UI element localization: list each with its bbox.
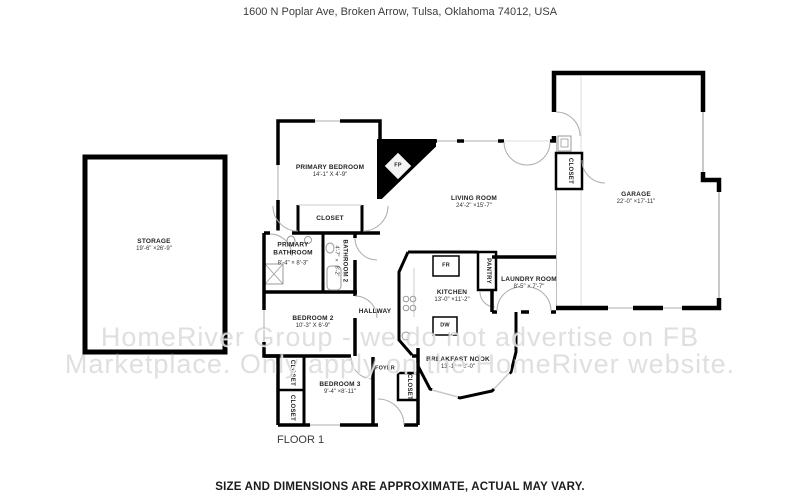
room-label-hallway: HALLWAY xyxy=(359,308,392,316)
room-label-kitchen: KITCHEN 13'-0" ×11'-2" xyxy=(434,289,469,305)
room-label-pantry: PANTRY xyxy=(483,258,491,284)
room-label-storage: STORAGE 19'-6" ×26'-9" xyxy=(136,238,172,254)
room-label-primary-closet: CLOSET xyxy=(316,215,344,223)
room-label-living-room: LIVING ROOM 24'-2" ×15'-7" xyxy=(451,195,497,211)
fridge-label: FR xyxy=(442,263,450,270)
room-label-garage-closet: CLOSET xyxy=(565,158,573,184)
room-label-primary-bathroom: PRIMARY BATHROOM 8'-4" × 8'-3" xyxy=(270,240,316,268)
room-label-laundry: LAUNDRY ROOM 8'-5" × 7'-7" xyxy=(501,276,557,292)
fireplace-label: FP xyxy=(394,163,401,170)
room-label-primary-bedroom: PRIMARY BEDROOM 14'-1" X 4'-9" xyxy=(296,164,364,180)
floor-plan-drawing xyxy=(0,0,800,499)
room-label-bedroom3: BEDROOM 3 9'-4" ×8'-11" xyxy=(319,381,360,397)
disclaimer-text: SIZE AND DIMENSIONS ARE APPROXIMATE, ACT… xyxy=(0,481,800,493)
floor-plan-page: 1600 N Poplar Ave, Broken Arrow, Tulsa, … xyxy=(0,0,800,499)
address-title: 1600 N Poplar Ave, Broken Arrow, Tulsa, … xyxy=(0,6,800,18)
room-label-garage: GARAGE 22'-0" ×17'-11" xyxy=(617,191,656,207)
watermark-line-2: Marketplace. Only apply on the HomeRiver… xyxy=(0,349,800,380)
floor-label: FLOOR 1 xyxy=(277,434,324,446)
room-label-bathroom2: BATHROOM 2 4'-7" × 8'-2" xyxy=(333,240,348,283)
room-label-bedroom3-closet-b: CLOSET xyxy=(287,395,295,421)
